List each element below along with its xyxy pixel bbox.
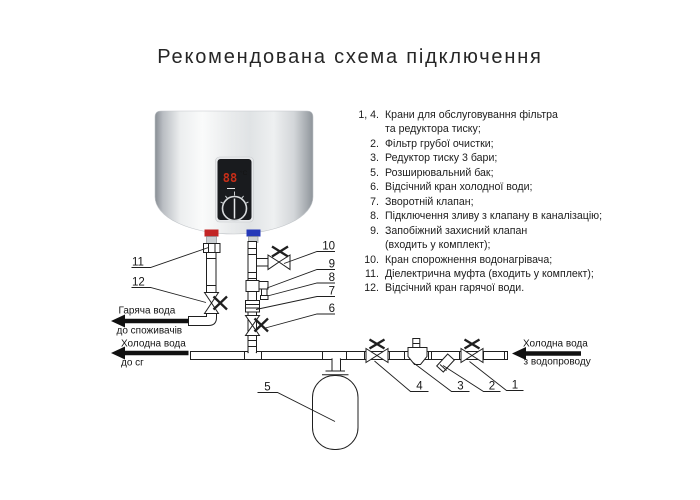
hot-water-line (189, 244, 228, 326)
water-heater: 88 °C (155, 111, 313, 244)
callout-8: 8 (329, 272, 335, 284)
hot-shutoff-valve-12[interactable] (205, 293, 228, 314)
schematic-page: Рекомендована схема підключення 1, 4.Кра… (0, 0, 700, 500)
temp-unit: °C (240, 169, 248, 177)
callout-4: 4 (416, 381, 423, 393)
pressure-reducer-3 (408, 339, 427, 365)
callout-10: 10 (322, 241, 335, 253)
cold-in-label-1: Холодна вода (523, 339, 588, 350)
check-valve-7 (246, 301, 260, 313)
cold-out-label-2: до сг (121, 358, 144, 369)
drain-valve-10[interactable] (257, 247, 291, 270)
expansion-tank (313, 358, 359, 449)
callout-11: 11 (132, 257, 144, 269)
callout-3: 3 (457, 381, 463, 393)
cold-in-label-2: з водопроводу (524, 357, 591, 368)
hot-elbow (189, 314, 217, 326)
hot-out-label-1: Гаряча вода (119, 306, 176, 317)
hot-out-label-2: до споживачів (117, 326, 183, 337)
callout-6: 6 (329, 303, 335, 315)
sewer-drain-cap (261, 296, 269, 300)
temp-display: 88 (223, 171, 237, 185)
piping-diagram: 88 °C (0, 0, 700, 500)
callout-12: 12 (132, 277, 145, 289)
cold-inlet-band (247, 230, 261, 237)
cold-out-label-1: Холодна вода (121, 339, 186, 350)
hot-outlet-stub (207, 237, 217, 245)
tank-vessel (313, 376, 359, 450)
tank-stub (332, 359, 341, 371)
callout-5: 5 (264, 382, 270, 394)
sewer-drain-8 (262, 289, 268, 296)
control-panel: 88 °C (216, 157, 254, 222)
callout-9: 9 (329, 259, 335, 271)
hot-outlet-band (205, 230, 219, 237)
callout-7: 7 (329, 286, 335, 298)
callout-1: 1 (512, 380, 518, 392)
callout-2: 2 (489, 381, 495, 393)
